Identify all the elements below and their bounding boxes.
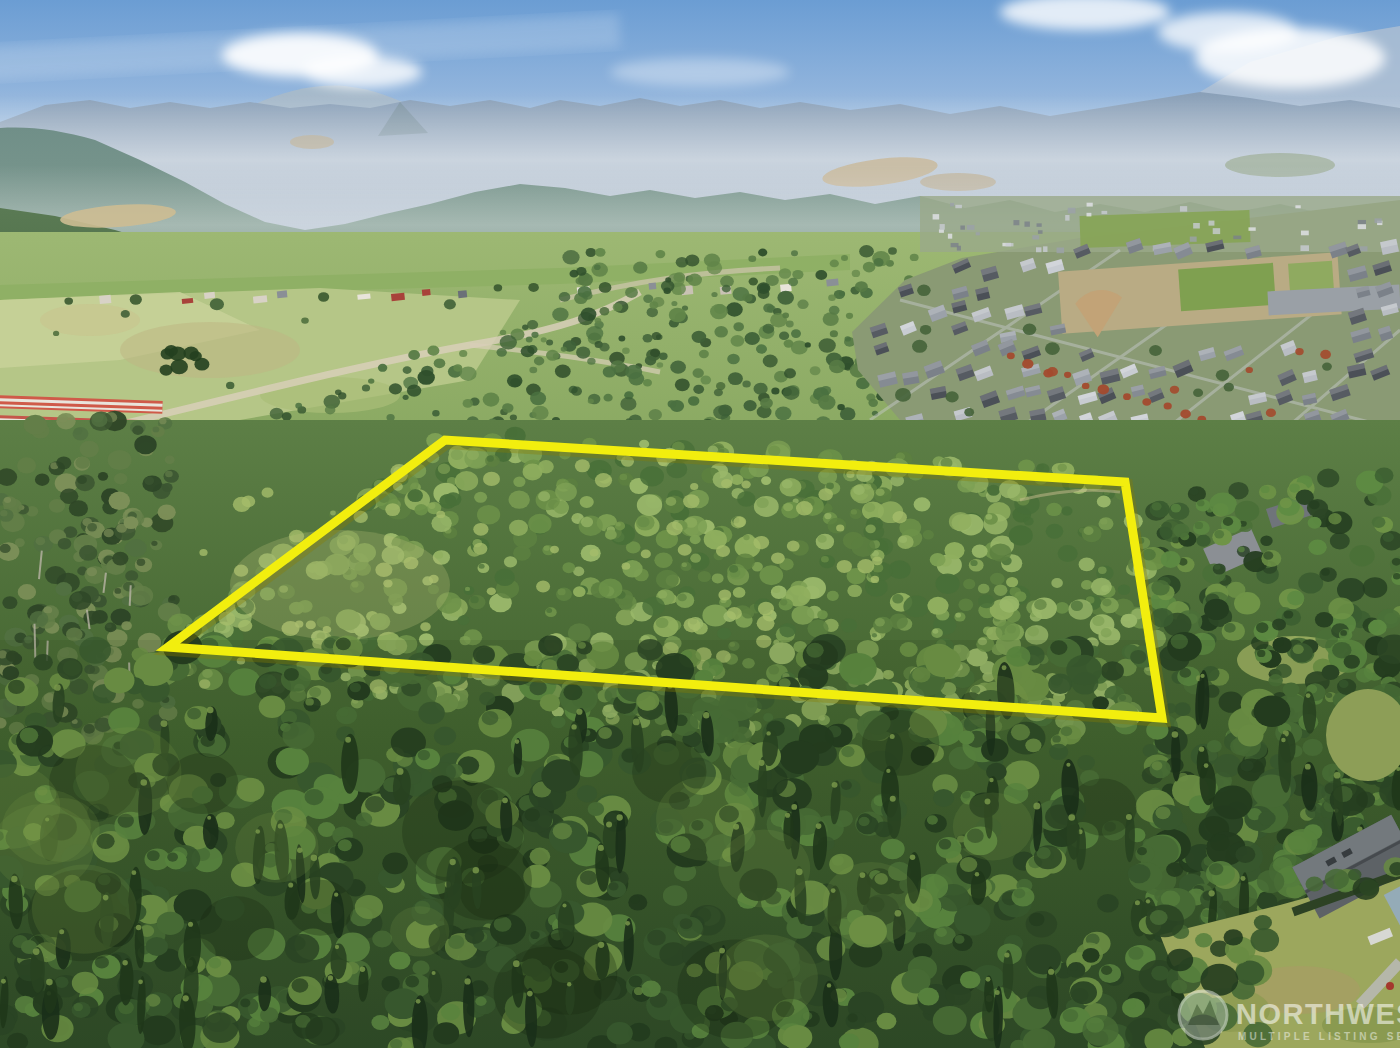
vignette	[0, 640, 1400, 1048]
aerial-photo: NORTHWEST MULTIPLE LISTING SERVICE	[0, 0, 1400, 1048]
watermark-line1: NORTHWEST	[1236, 998, 1400, 1030]
listing-photo: NORTHWEST MULTIPLE LISTING SERVICE	[0, 0, 1400, 1048]
mls-watermark: NORTHWEST MULTIPLE LISTING SERVICE	[1179, 991, 1400, 1042]
nwmls-logo-icon	[1179, 991, 1227, 1039]
watermark-line2: MULTIPLE LISTING SERVICE	[1238, 1031, 1400, 1042]
